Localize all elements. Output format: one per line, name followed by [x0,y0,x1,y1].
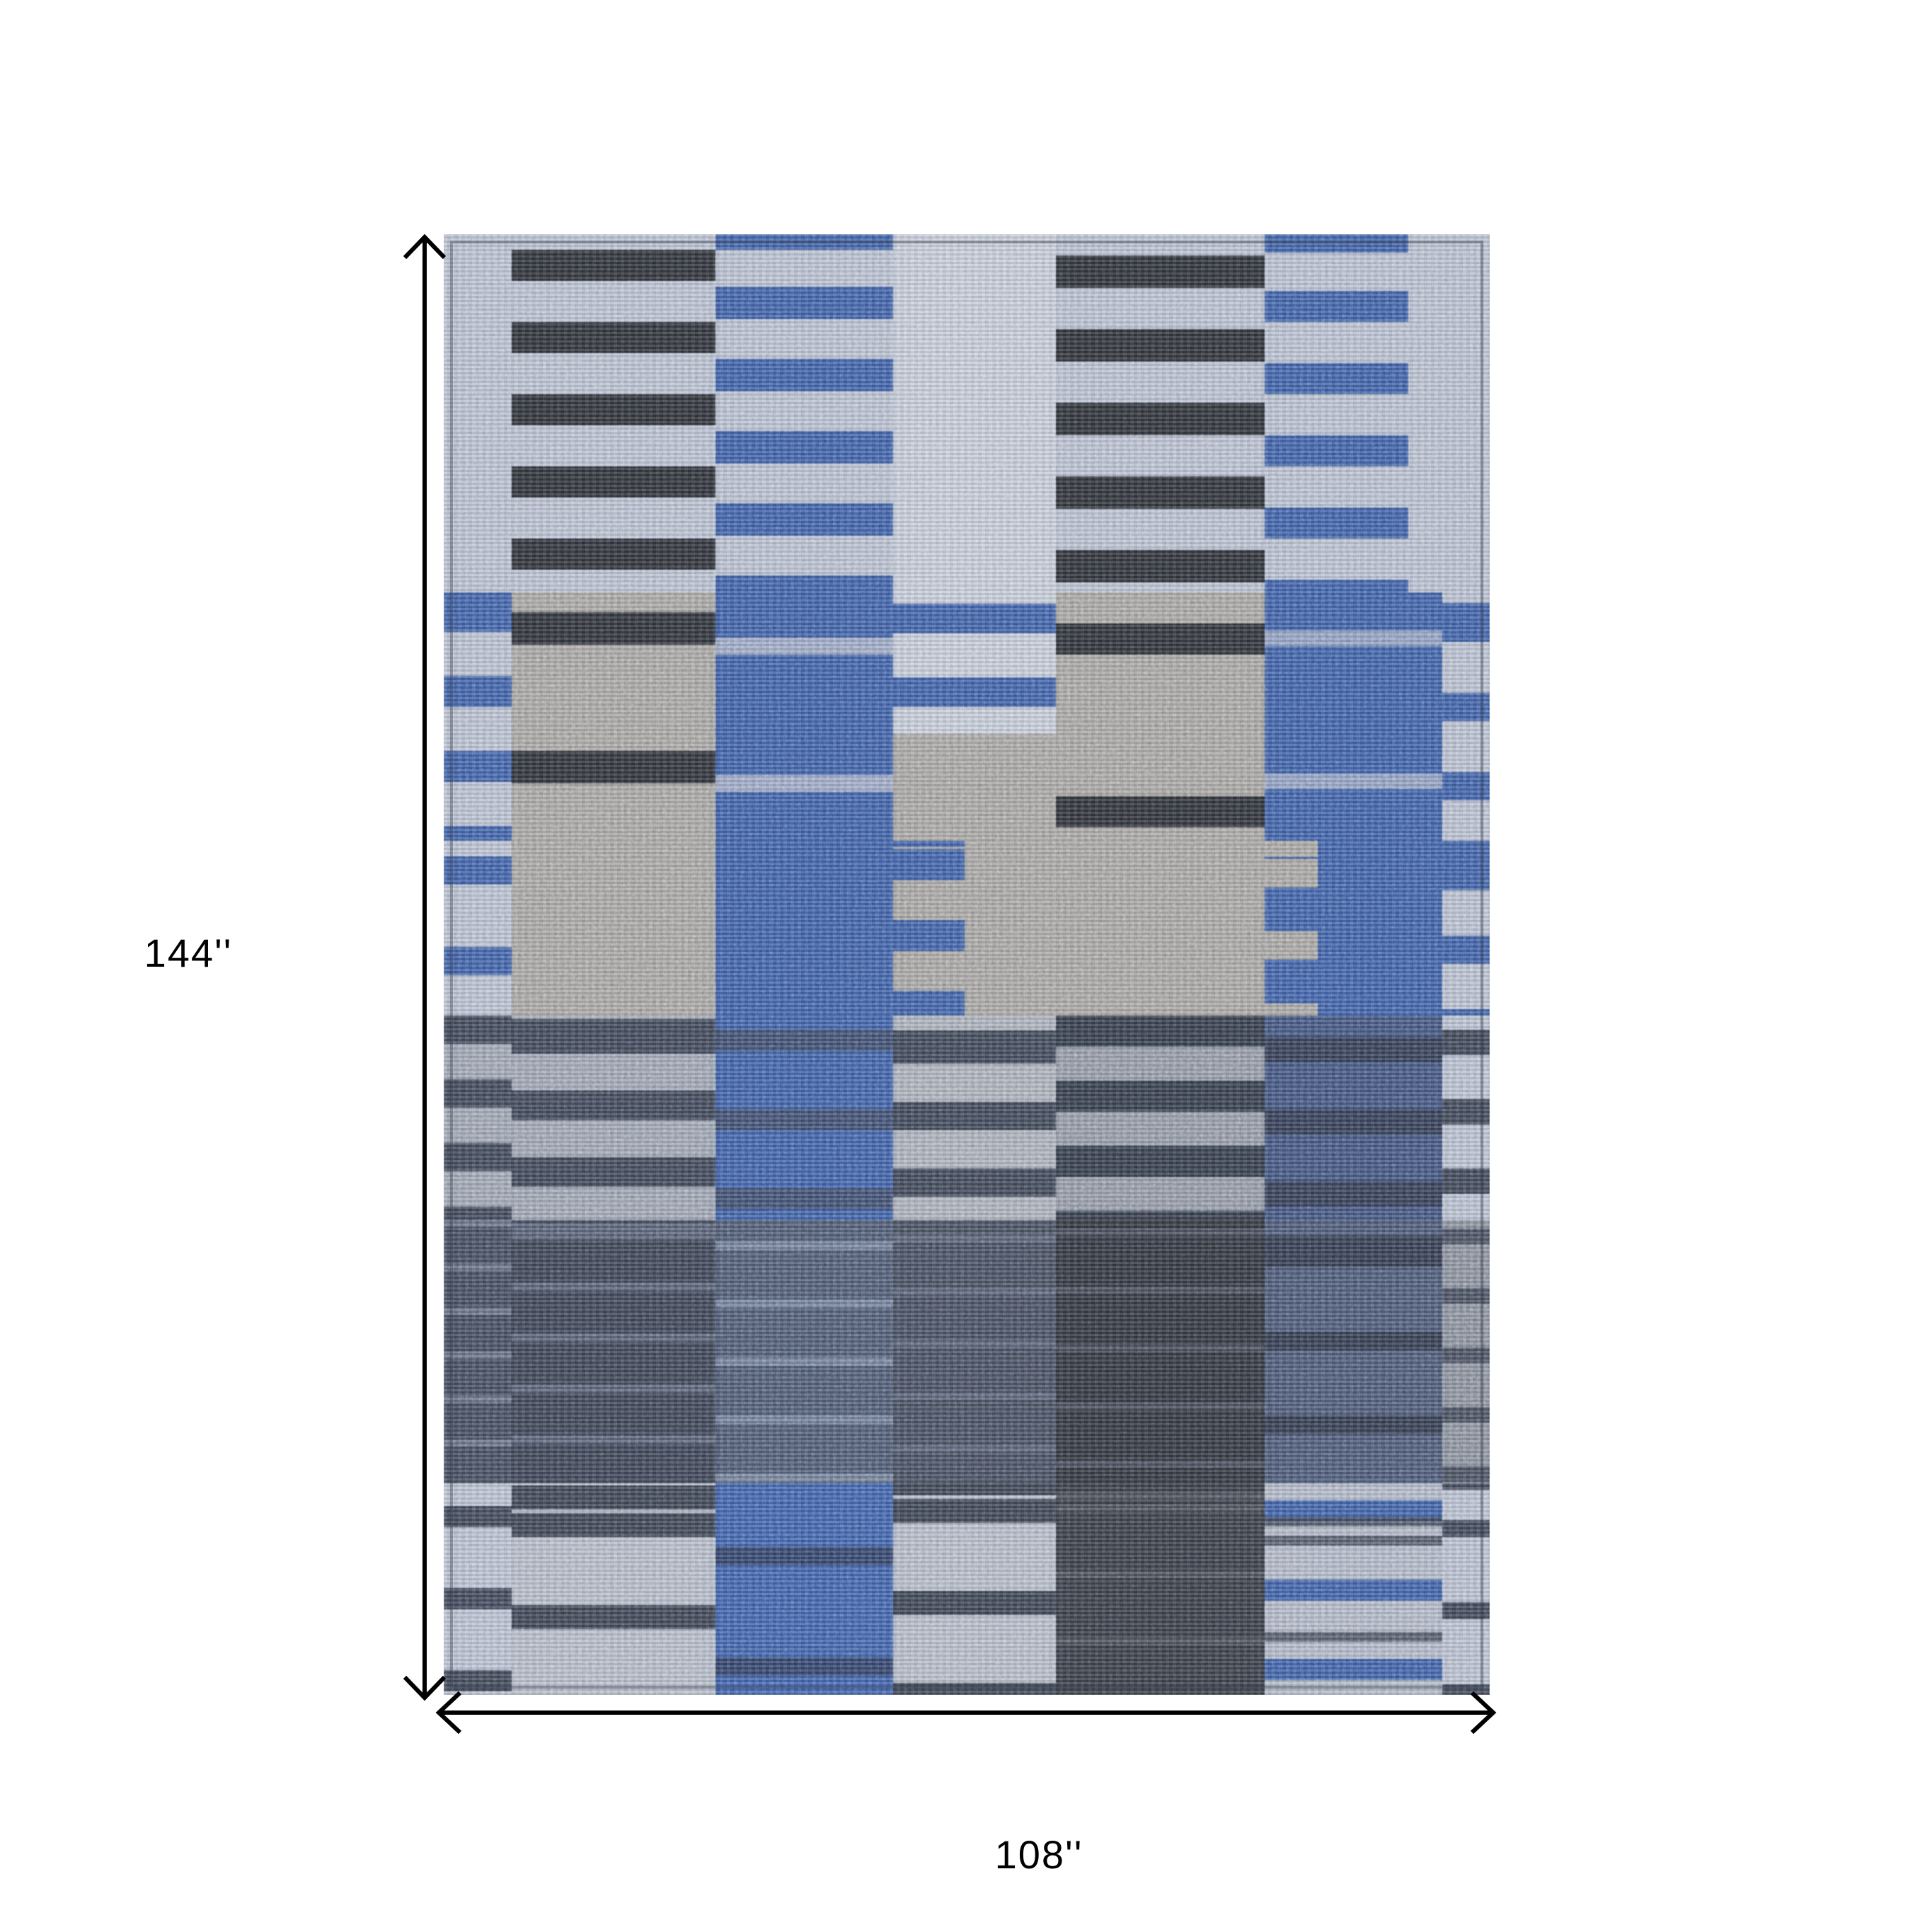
rug-stripe-layer [1442,592,1490,841]
rug-block [1056,1220,1265,1483]
rug-block [1056,841,1265,1016]
rug-block [512,592,715,841]
rug-block [893,734,1056,841]
rug-blocks [444,234,1490,1695]
rug-block [1408,234,1490,592]
rug-block [893,1483,1056,1695]
height-dimension-label: 144'' [89,930,287,976]
rug-stripe-layer [1442,1220,1490,1483]
rug-block [893,841,1056,1016]
rug-block [1056,234,1265,592]
rug-stripe-layer [444,841,512,1016]
rug-block [1265,1016,1442,1220]
rug-stripe-layer [1265,841,1318,1016]
rug-block [444,1016,512,1220]
rug-block [444,1483,512,1695]
rug-stripe-layer [512,1220,715,1483]
rug-block [1442,1220,1490,1483]
rug-block [715,592,893,841]
rug-stripe-layer [715,1016,893,1220]
rug-stripe-layer [715,1220,893,1483]
rug-block [893,592,1056,734]
rug-stripe-layer [1442,841,1490,1016]
rug-stripe-layer [444,1483,512,1695]
rug-block [512,1016,715,1220]
rug-block [715,841,893,1016]
rug-stripe-layer [1265,1220,1442,1483]
rug-stripe-layer [1442,1016,1490,1220]
rug-block [1265,1483,1442,1695]
rug-stripe-layer [1056,1016,1265,1220]
rug-stripe-layer [715,1483,893,1695]
rug-block [1265,592,1442,841]
rug-stripe-layer [444,592,512,841]
rug-block [1265,234,1408,592]
rug-stripe-layer [512,234,715,592]
rug-stripe-layer [715,234,893,592]
width-dimension-label: 108'' [940,1832,1138,1878]
rug-block [1442,841,1490,1016]
rug-stripe-layer [1442,1483,1490,1695]
rug-block [1265,1220,1442,1483]
rug-block [1056,1483,1265,1695]
rug-block [715,234,893,592]
product-dimension-diagram: 144'' 108'' [0,0,1932,1932]
rug-block [715,1220,893,1483]
rug-stripe-layer [893,841,965,1016]
rug-block [512,841,715,1016]
rug-stripe-layer [1265,592,1442,841]
rug-stripe-layer [512,592,715,841]
rug-block [715,1016,893,1220]
rug-block [512,1483,715,1695]
rug-stripe-layer [1056,1483,1265,1695]
rug-stripe-layer [893,592,1056,734]
rug-stripe-layer [893,1220,1056,1483]
rug-stripe-layer [715,592,893,841]
rug-block [1442,592,1490,841]
rug-stripe-layer [1265,1016,1442,1220]
rug-block [512,234,715,592]
rug-block [1442,1016,1490,1220]
rug-block [1442,1483,1490,1695]
rug-stripe-layer [1056,1220,1265,1483]
rug-block [893,234,1056,592]
rug-stripe-layer [1265,1483,1442,1695]
arrowhead-down [405,1677,444,1698]
arrowhead-up [405,237,444,258]
rug-block [1056,1016,1265,1220]
arrowhead-right [1472,1693,1493,1732]
rug-stripe-layer [512,1016,715,1220]
rug-block [444,234,512,592]
rug-stripe-layer [893,1483,1056,1695]
rug-stripe-layer [1056,592,1265,841]
rug-block [444,1220,512,1483]
rug-stripe-layer [893,1016,1056,1220]
rug-stripe-layer [444,1220,512,1483]
rug-block [444,841,512,1016]
rug-stripe-layer [444,1016,512,1220]
rug-block [512,1220,715,1483]
rug-block [1056,592,1265,841]
rug-block [1265,841,1442,1016]
rug-block [444,592,512,841]
rug-block [893,1016,1056,1220]
rug-stripe-layer [1265,234,1408,592]
arrowhead-left [439,1693,460,1732]
rug-stripe-layer [512,1483,715,1695]
rug-block [715,1483,893,1695]
rug-stripe-layer [1056,234,1265,592]
rug-image [444,234,1490,1695]
rug-block [893,1220,1056,1483]
